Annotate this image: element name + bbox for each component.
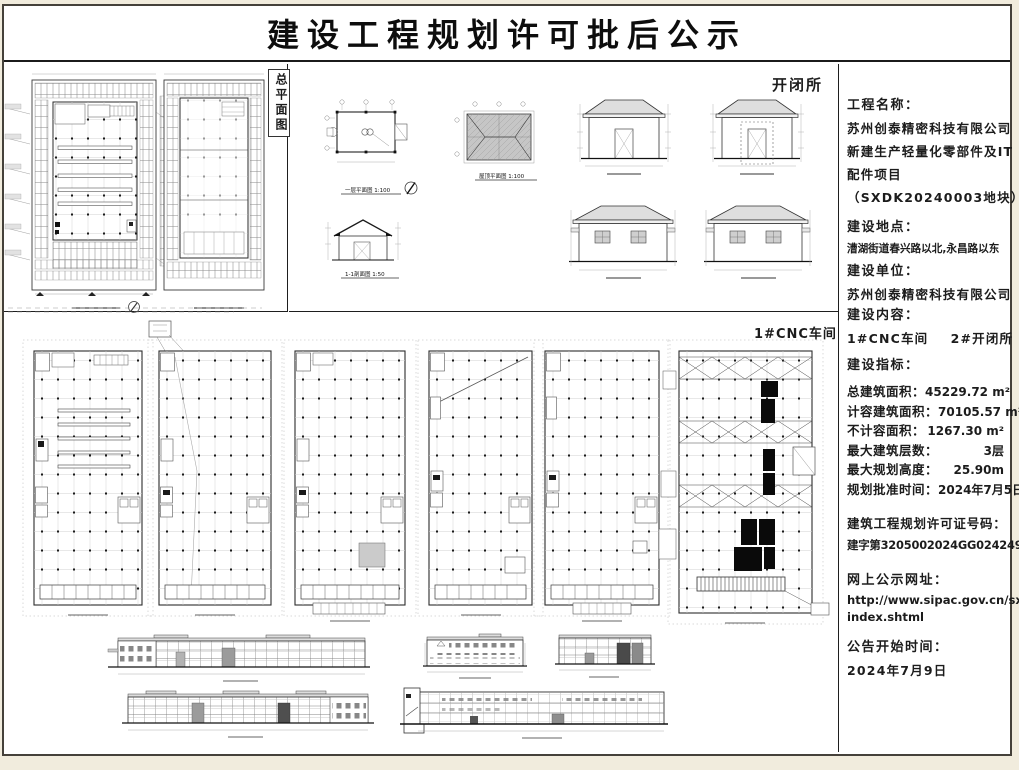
indicator-value: 70105.57 m² xyxy=(938,405,1019,419)
indicator-row: 不计容面积： 1267.30 m² xyxy=(847,420,1004,440)
website-label: 网上公示网址： xyxy=(847,569,1004,592)
content-value: 1#CNC车间 2#开闭所 xyxy=(847,327,1004,350)
unit-block: 建设单位： 苏州创泰精密科技有限公司 xyxy=(847,260,1004,306)
unit-label: 建设单位： xyxy=(847,260,1004,283)
indicator-label: 规划批准时间： xyxy=(847,479,938,498)
project-name-line: 配件项目 xyxy=(847,163,1004,186)
project-name-block: 工程名称： 苏州创泰精密科技有限公司 新建生产轻量化零部件及IT 配件项目 （S… xyxy=(847,94,1004,209)
content-block: 建设内容： 1#CNC车间 2#开闭所 xyxy=(847,304,1004,350)
indicators-label: 建设指标： xyxy=(847,354,1004,377)
indicator-row: 最大规划高度： 25.90m xyxy=(847,459,1004,479)
indicator-value: 2024年7月5日 xyxy=(938,481,1019,498)
website-url-line: index.shtml xyxy=(847,609,1004,626)
indicator-label: 不计容面积： xyxy=(847,420,925,439)
indicator-row: 计容建筑面积： 70105.57 m² xyxy=(847,401,1004,421)
switch-station-section xyxy=(289,64,838,312)
announce-date: 2024年7月9日 xyxy=(847,659,1004,682)
website-block: 网上公示网址： http://www.sipac.gov.cn/sxhzq/ i… xyxy=(847,569,1004,626)
indicator-value: 25.90m xyxy=(954,463,1004,477)
workshop-section xyxy=(4,313,838,750)
permit-number: 建字第3205002024GG0242497号 xyxy=(847,535,1004,555)
title-bar: 建设工程规划许可批后公示 xyxy=(4,6,1010,62)
project-name-label: 工程名称： xyxy=(847,94,1004,117)
indicator-row: 规划批准时间： 2024年7月5日 xyxy=(847,479,1004,499)
project-name-line: 苏州创泰精密科技有限公司 xyxy=(847,117,1004,140)
announce-block: 公告开始时间： 2024年7月9日 xyxy=(847,636,1004,682)
indicator-label: 计容建筑面积： xyxy=(847,401,938,420)
project-name-line: 新建生产轻量化零部件及IT xyxy=(847,140,1004,163)
workshop-label: 1#CNC车间 xyxy=(754,323,837,342)
permit-block: 建筑工程规划许可证号码： 建字第3205002024GG0242497号 xyxy=(847,512,1004,555)
notice-sheet: 建设工程规划许可批后公示 xyxy=(2,4,1012,756)
page-title: 建设工程规划许可批后公示 xyxy=(267,10,747,56)
website-url-line: http://www.sipac.gov.cn/sxhzq/ xyxy=(847,592,1004,609)
site-plan-section xyxy=(4,64,288,312)
indicator-label: 总建筑面积： xyxy=(847,381,925,400)
location-label: 建设地点： xyxy=(847,216,1004,239)
indicator-value: 3层 xyxy=(984,442,1004,459)
indicators-block: 建设指标： 总建筑面积： 45229.72 m² 计容建筑面积： 70105.5… xyxy=(847,354,1004,498)
content-label: 建设内容： xyxy=(847,304,1004,327)
project-name-line: （SXDK20240003地块） xyxy=(847,186,1004,209)
switch-station-label: 开闭所 xyxy=(772,74,823,95)
indicator-row: 最大建筑层数： 3层 xyxy=(847,440,1004,460)
indicator-label: 最大建筑层数： xyxy=(847,440,938,459)
indicator-value: 45229.72 m² xyxy=(925,385,1010,399)
indicator-row: 总建筑面积： 45229.72 m² xyxy=(847,381,1004,401)
announce-label: 公告开始时间： xyxy=(847,636,1004,659)
notice-page: { "page": { "title": "建设工程规划许可批后公示" }, "… xyxy=(0,0,1019,770)
site-plan-label: 总平面图 xyxy=(268,69,290,137)
info-panel: 工程名称： 苏州创泰精密科技有限公司 新建生产轻量化零部件及IT 配件项目 （S… xyxy=(838,64,1010,752)
indicator-label: 最大规划高度： xyxy=(847,459,938,478)
location-block: 建设地点： 漕湖街道春兴路以北,永昌路以东 xyxy=(847,216,1004,260)
location-value: 漕湖街道春兴路以北,永昌路以东 xyxy=(847,239,1004,260)
indicator-value: 1267.30 m² xyxy=(927,424,1004,438)
unit-value: 苏州创泰精密科技有限公司 xyxy=(847,283,1004,306)
permit-label: 建筑工程规划许可证号码： xyxy=(847,512,1004,535)
